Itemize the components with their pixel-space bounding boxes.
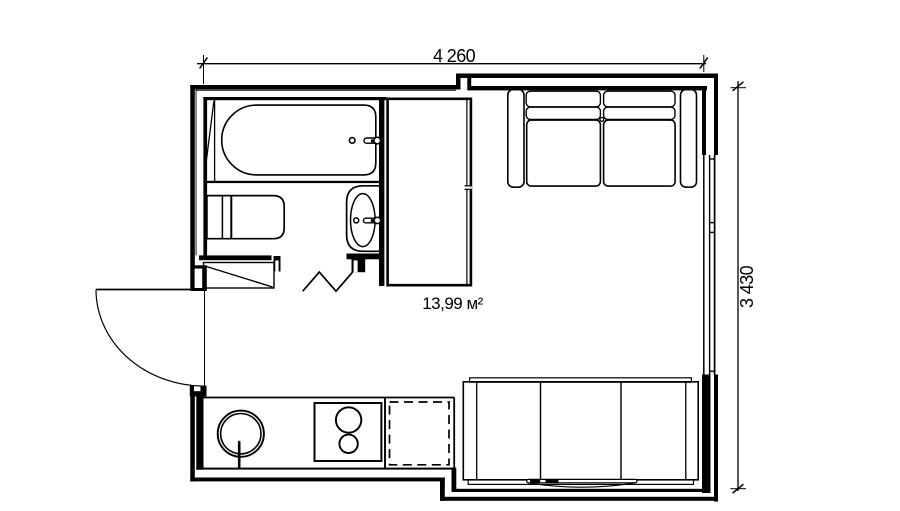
svg-text:3 430: 3 430: [737, 265, 757, 308]
svg-text:13,99 м²: 13,99 м²: [422, 294, 483, 313]
svg-text:4 260: 4 260: [433, 46, 476, 66]
